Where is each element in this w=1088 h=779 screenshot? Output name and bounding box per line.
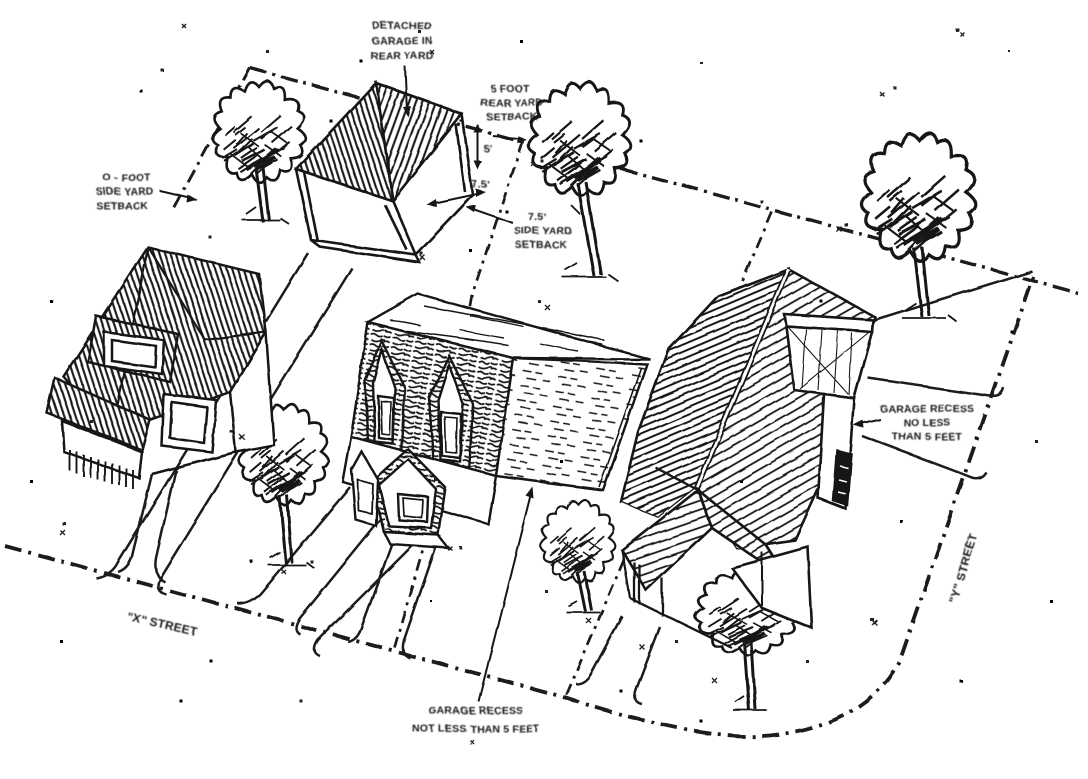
svg-text:THAN 5 FEET: THAN 5 FEET <box>892 431 962 443</box>
svg-text:SETBACK: SETBACK <box>486 111 538 123</box>
svg-text:NO LESS: NO LESS <box>903 417 951 429</box>
svg-text:SIDE YARD: SIDE YARD <box>514 225 572 237</box>
svg-text:7.5': 7.5' <box>472 179 490 191</box>
svg-text:SIDE YARD: SIDE YARD <box>96 186 154 198</box>
svg-text:SETBACK: SETBACK <box>515 239 567 251</box>
svg-text:SETBACK: SETBACK <box>96 200 148 212</box>
svg-text:7.5': 7.5' <box>528 211 546 223</box>
svg-text:DETACHED: DETACHED <box>372 20 431 32</box>
svg-text:5 FOOT: 5 FOOT <box>490 83 530 95</box>
svg-text:GARAGE RECESS: GARAGE RECESS <box>429 705 524 717</box>
svg-text:O - FOOT: O - FOOT <box>103 172 152 184</box>
svg-text:REAR YARD: REAR YARD <box>370 50 433 62</box>
svg-text:NOT LESS THAN 5 FEET: NOT LESS THAN 5 FEET <box>412 723 539 735</box>
svg-text:GARAGE RECESS: GARAGE RECESS <box>880 403 975 415</box>
svg-text:5': 5' <box>484 143 493 155</box>
svg-text:REAR YARD: REAR YARD <box>480 97 543 109</box>
svg-text:GARAGE IN: GARAGE IN <box>371 35 432 47</box>
